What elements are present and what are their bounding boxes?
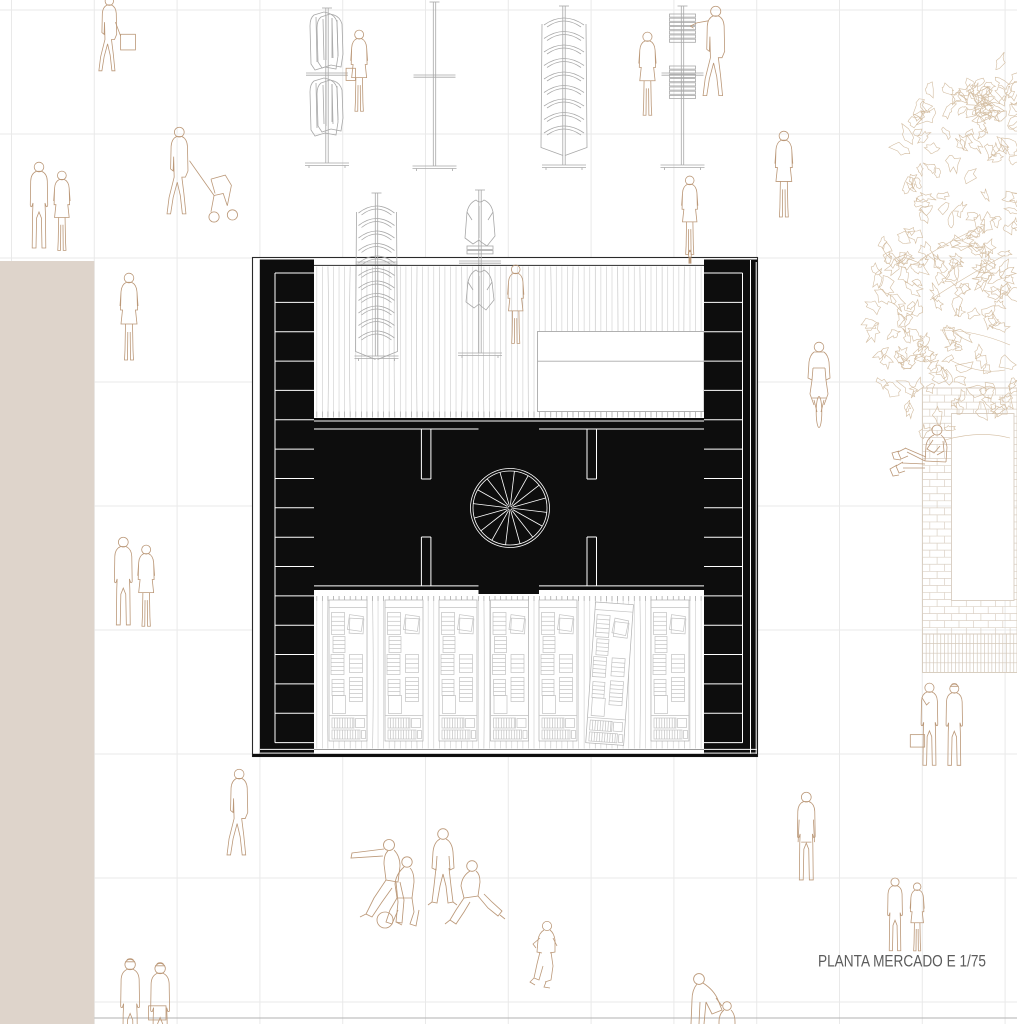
svg-text:PLANTA MERCADO E 1/75: PLANTA MERCADO E 1/75: [818, 953, 986, 971]
